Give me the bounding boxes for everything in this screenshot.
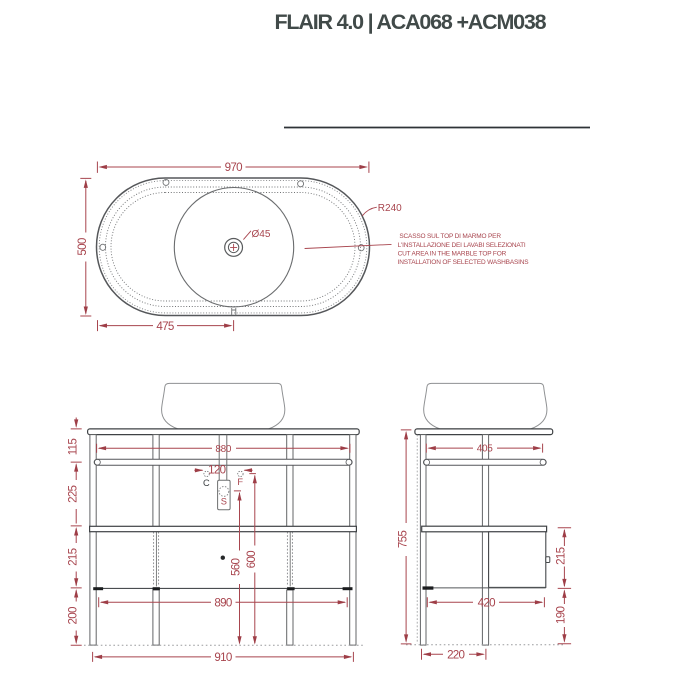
- svg-text:S: S: [221, 497, 227, 507]
- svg-text:225: 225: [66, 485, 79, 502]
- svg-text:Ø45: Ø45: [252, 229, 271, 240]
- svg-text:FLAIR 4.0 | ACA068 +ACM038: FLAIR 4.0 | ACA068 +ACM038: [275, 10, 547, 34]
- svg-text:F: F: [237, 477, 243, 487]
- svg-text:R240: R240: [378, 203, 402, 214]
- svg-text:475: 475: [156, 320, 173, 333]
- svg-text:CUT AREA IN THE MARBLE TOP FOR: CUT AREA IN THE MARBLE TOP FOR: [398, 250, 507, 257]
- svg-text:200: 200: [66, 607, 79, 624]
- svg-text:C: C: [203, 478, 210, 488]
- svg-text:215: 215: [66, 548, 79, 565]
- svg-text:420: 420: [478, 596, 495, 609]
- svg-text:500: 500: [76, 238, 89, 255]
- svg-text:560: 560: [230, 559, 243, 576]
- svg-text:120: 120: [208, 463, 225, 476]
- svg-text:970: 970: [225, 161, 242, 174]
- svg-text:INSTALLATION OF SELECTED WASHB: INSTALLATION OF SELECTED WASHBASINS: [398, 259, 530, 266]
- svg-text:880: 880: [215, 444, 232, 455]
- svg-text:SCASSO SUL TOP DI MARMO PER: SCASSO SUL TOP DI MARMO PER: [399, 233, 501, 240]
- svg-text:600: 600: [245, 551, 258, 568]
- svg-text:890: 890: [214, 596, 231, 609]
- svg-text:220: 220: [447, 648, 464, 661]
- svg-text:755: 755: [396, 531, 409, 548]
- svg-text:215: 215: [555, 547, 568, 564]
- svg-text:405: 405: [477, 444, 494, 455]
- svg-text:190: 190: [555, 607, 568, 624]
- svg-text:L'INSTALLAZIONE DEI LAVABI SEL: L'INSTALLAZIONE DEI LAVABI SELEZIONATI: [398, 242, 526, 249]
- svg-text:115: 115: [66, 439, 79, 456]
- svg-text:910: 910: [214, 651, 231, 664]
